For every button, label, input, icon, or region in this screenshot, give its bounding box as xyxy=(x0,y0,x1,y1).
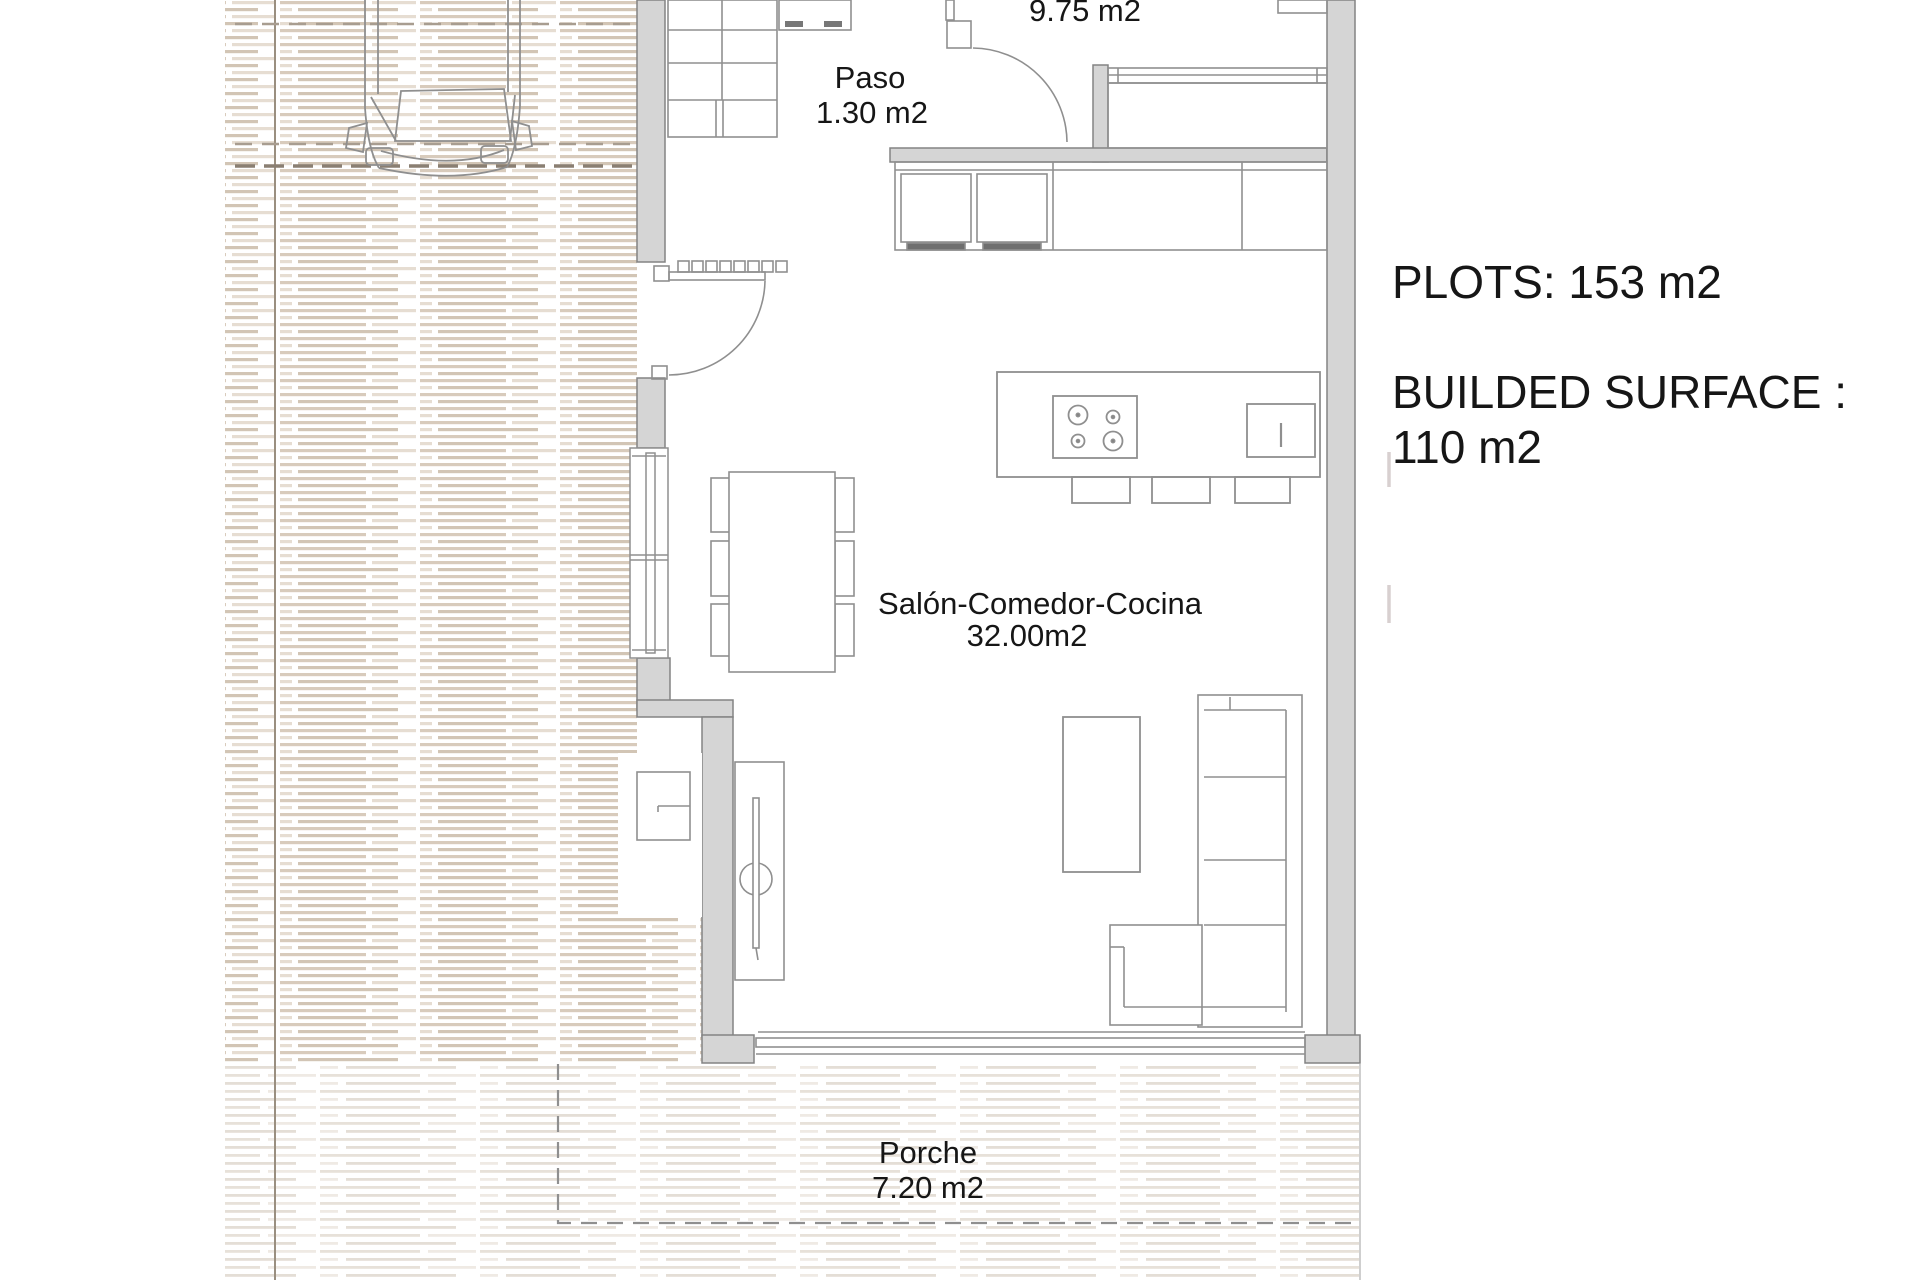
floor-plan: Paso 1.30 m2 9.75 m2 Salón-Comedor-Cocin… xyxy=(0,0,1920,1280)
entry-threshold-squares xyxy=(678,261,787,272)
corner-bottom-right xyxy=(1305,1035,1360,1063)
window-left xyxy=(630,448,668,658)
left-wall-top xyxy=(637,0,665,262)
label-porche-area: 7.20 m2 xyxy=(872,1170,984,1205)
kitchen-wall xyxy=(890,148,1327,162)
kitchen-counter xyxy=(895,162,1327,250)
dining-table xyxy=(729,472,835,672)
built-surface-value: 110 m2 xyxy=(1392,421,1542,473)
right-wall xyxy=(1327,0,1355,1037)
stool xyxy=(1152,477,1210,503)
porch-hatch xyxy=(225,1064,1360,1280)
label-bedroom-area: 9.75 m2 xyxy=(1029,0,1141,28)
dining-set xyxy=(711,472,854,672)
left-wall-jog xyxy=(637,700,733,717)
kitchen-island xyxy=(997,372,1320,503)
stool xyxy=(1235,477,1290,503)
label-salon-area: 32.00m2 xyxy=(967,618,1088,653)
label-porche-name: Porche xyxy=(879,1135,977,1170)
label-paso-name: Paso xyxy=(835,60,906,95)
cabinet-grid xyxy=(668,0,777,137)
label-paso-area: 1.30 m2 xyxy=(816,95,928,130)
left-wall-bottom xyxy=(702,717,733,1037)
floor-plan-page: Paso 1.30 m2 9.75 m2 Salón-Comedor-Cocin… xyxy=(0,0,1920,1280)
entry-door xyxy=(652,266,765,379)
label-salon-name: Salón-Comedor-Cocina xyxy=(878,586,1203,621)
appliance-top xyxy=(779,0,851,30)
entry-door-arc xyxy=(669,281,765,375)
stool xyxy=(1072,477,1130,503)
built-surface-label: BUILDED SURFACE : xyxy=(1392,366,1847,418)
bedroom-door-arc xyxy=(973,48,1067,142)
coffee-table xyxy=(1063,717,1140,872)
porch-sliding-door xyxy=(756,1032,1305,1054)
ac-unit-pad xyxy=(618,753,702,917)
info-panel: PLOTS: 153 m2 BUILDED SURFACE : 110 m2 xyxy=(1392,256,1847,473)
cooktop xyxy=(1053,396,1137,458)
plots-label: PLOTS: 153 m2 xyxy=(1392,256,1722,308)
tv-unit xyxy=(735,762,784,980)
left-wall-mid xyxy=(637,378,665,448)
corner-bottom-left xyxy=(702,1035,754,1063)
